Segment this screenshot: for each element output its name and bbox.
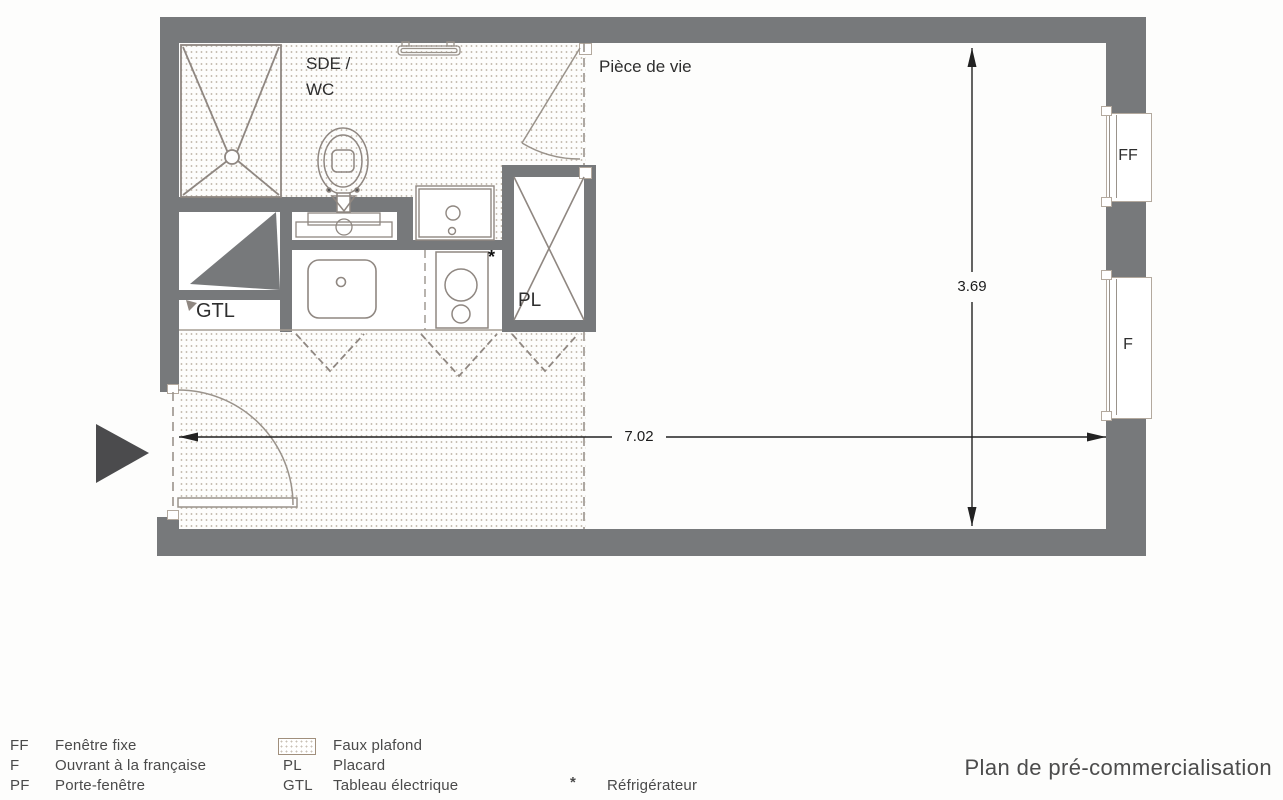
wall-right-lower [1106,417,1146,556]
label-placard: PL [518,291,541,312]
legend-fridge-label: Réfrigérateur [607,777,697,794]
fridge-marker: * [488,247,495,268]
wall-right-pier [1106,200,1146,277]
kitchen-counter [292,250,505,330]
wall-bottom [157,529,1146,556]
floor-plan-page: SDE / WC Pièce de vie PL GTL * FF F 7.02… [0,0,1283,800]
legend-f-label: Ouvrant à la française [55,757,206,774]
faux-plafond-swatch [278,738,316,755]
wall-kitchen-back [292,240,505,250]
door-frame-block [167,510,179,520]
legend-faux-plafond-label: Faux plafond [333,737,422,754]
window-frame-block [1101,270,1112,280]
legend-pl-label: Placard [333,757,385,774]
door-frame-block [579,167,592,179]
legend-f-abbr: F [10,757,19,774]
label-bathroom-line1: SDE / [306,55,350,74]
vanity-niche [292,212,397,240]
window-frame-block [1101,411,1112,421]
legend-pf-label: Porte-fenêtre [55,777,145,794]
legend-pf-abbr: PF [10,777,30,794]
door-frame-block [579,43,592,55]
legend-gtl-label: Tableau électrique [333,777,458,794]
window-frame-block [1101,197,1112,207]
legend-fridge-abbr: * [570,774,576,791]
legend-ff-abbr: FF [10,737,29,754]
plan-title: Plan de pré-commercialisation [772,755,1272,781]
door-frame-block [167,384,179,394]
label-gtl: GTL [196,300,235,322]
label-window-fixed: FF [1108,147,1148,165]
window-frame-block [1101,106,1112,116]
legend-ff-label: Fenêtre fixe [55,737,137,754]
label-living-room: Pièce de vie [599,58,692,77]
wall-gtl-divider [179,290,280,300]
wall-top [160,17,1146,43]
legend-gtl-abbr: GTL [283,777,313,794]
dimension-width-value: 7.02 [613,428,665,445]
legend-pl-abbr: PL [283,757,302,774]
label-bathroom-line2: WC [306,81,334,100]
entrance-arrow-icon [96,424,149,483]
wall-left-lower [157,517,179,556]
dimension-depth-value: 3.69 [946,278,998,295]
label-window-french: F [1108,336,1148,354]
wall-right-upper [1106,17,1146,113]
duct-closet [179,212,280,290]
wall-kitchen-west [280,197,292,332]
